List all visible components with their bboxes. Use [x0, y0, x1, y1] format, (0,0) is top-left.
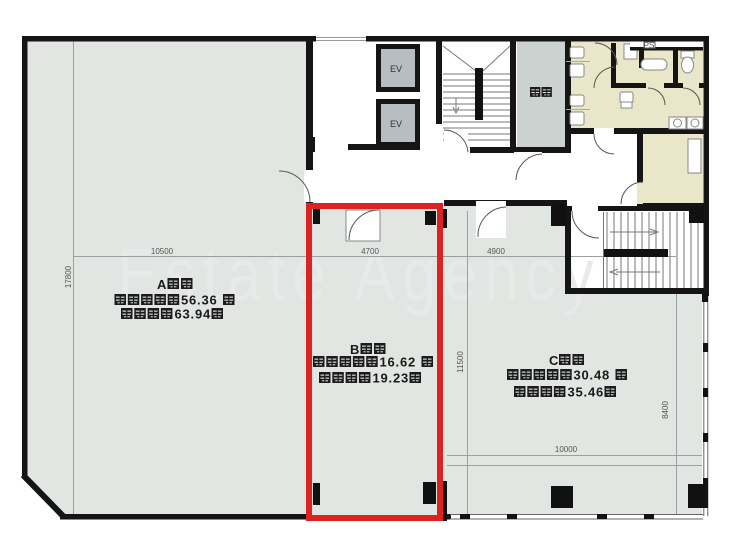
svg-text:16.62: 16.62 — [380, 355, 417, 370]
svg-text:A: A — [157, 277, 167, 292]
svg-text:10000: 10000 — [555, 445, 578, 454]
svg-text:17800: 17800 — [64, 265, 73, 288]
svg-text:8400: 8400 — [661, 401, 670, 419]
svg-text:30.48: 30.48 — [574, 368, 611, 383]
svg-text:35.46: 35.46 — [568, 385, 605, 400]
svg-text:EV: EV — [390, 64, 402, 74]
svg-text:4700: 4700 — [361, 247, 379, 256]
svg-text:56.36: 56.36 — [181, 293, 218, 308]
svg-text:63.94: 63.94 — [175, 307, 212, 322]
svg-text:4900: 4900 — [487, 247, 505, 256]
svg-text:PS: PS — [644, 41, 655, 50]
svg-text:B: B — [350, 342, 360, 357]
svg-text:C: C — [549, 353, 559, 368]
svg-text:10500: 10500 — [151, 247, 174, 256]
svg-text:19.23: 19.23 — [373, 371, 410, 386]
svg-text:EV: EV — [390, 119, 402, 129]
svg-text:11500: 11500 — [456, 351, 465, 373]
